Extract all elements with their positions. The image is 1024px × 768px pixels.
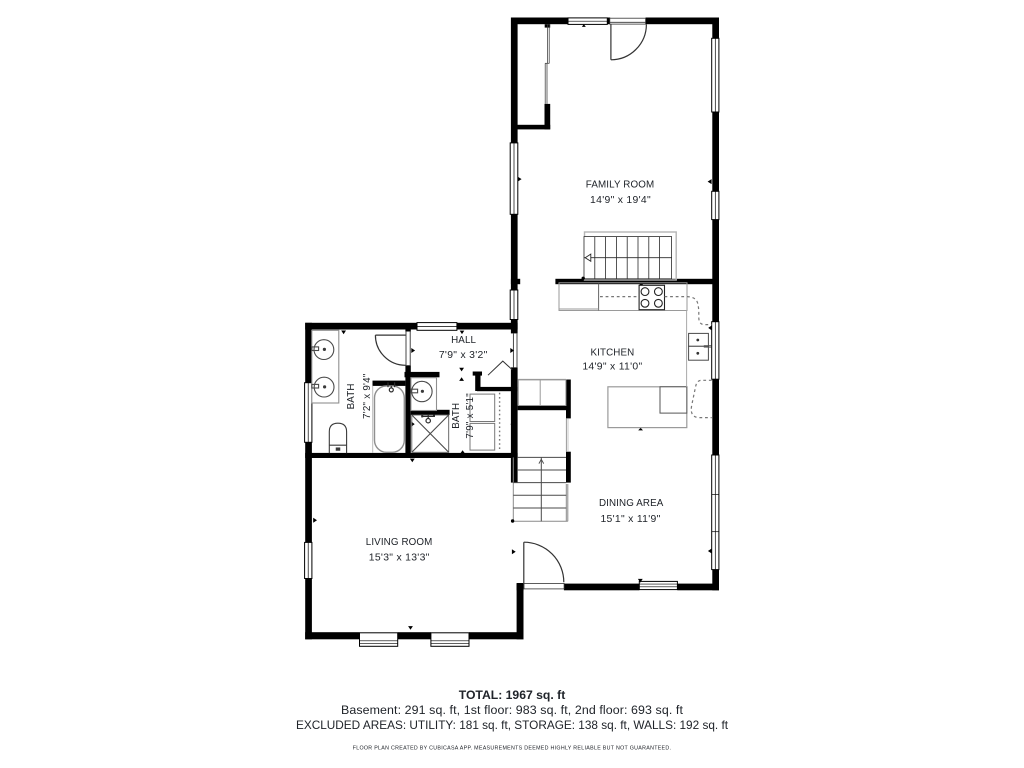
svg-text:7'9" x 3'2": 7'9" x 3'2"	[439, 350, 488, 361]
svg-text:7'9" x 5'1": 7'9" x 5'1"	[465, 393, 476, 439]
svg-text:TOTAL: 1967 sq. ft: TOTAL: 1967 sq. ft	[459, 688, 566, 702]
svg-text:14'9" x 19'4": 14'9" x 19'4"	[590, 195, 651, 206]
svg-text:BATH: BATH	[346, 383, 357, 409]
svg-text:DINING AREA: DINING AREA	[599, 498, 664, 509]
svg-text:BATH: BATH	[451, 403, 462, 429]
svg-text:HALL: HALL	[451, 335, 476, 346]
svg-text:FAMILY ROOM: FAMILY ROOM	[586, 179, 654, 190]
svg-text:7'2" x 9'4": 7'2" x 9'4"	[362, 373, 373, 419]
svg-text:Basement: 291 sq. ft, 1st floo: Basement: 291 sq. ft, 1st floor: 983 sq.…	[341, 703, 683, 717]
svg-text:EXCLUDED AREAS: UTILITY: 181 s: EXCLUDED AREAS: UTILITY: 181 sq. ft, STO…	[296, 718, 729, 732]
svg-text:15'1" x 11'9": 15'1" x 11'9"	[600, 514, 660, 525]
svg-text:LIVING ROOM: LIVING ROOM	[366, 537, 433, 548]
svg-text:15'3" x 13'3": 15'3" x 13'3"	[369, 552, 430, 563]
svg-text:FLOOR PLAN CREATED BY CUBICASA: FLOOR PLAN CREATED BY CUBICASA APP. MEAS…	[353, 746, 672, 752]
svg-text:KITCHEN: KITCHEN	[590, 347, 634, 358]
svg-text:14'9" x 11'0": 14'9" x 11'0"	[582, 361, 642, 372]
